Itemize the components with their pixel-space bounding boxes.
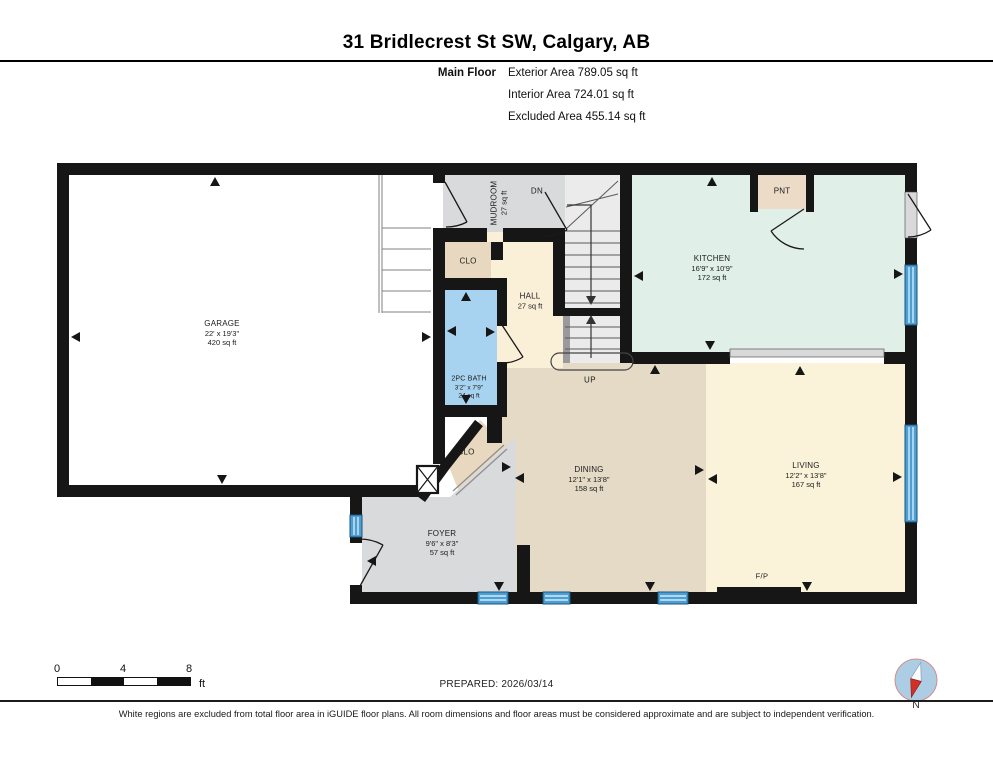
kitchen-half-wall bbox=[730, 349, 884, 357]
room-name: HALL bbox=[518, 292, 543, 302]
room-label-living: LIVING 12'2" x 13'8" 167 sq ft bbox=[785, 461, 826, 490]
scale-tick-0: 0 bbox=[54, 663, 60, 675]
room-dims: 22' x 19'3" bbox=[204, 328, 239, 338]
room-dims: 9'6" x 8'3" bbox=[426, 538, 459, 548]
room-area: 420 sq ft bbox=[204, 338, 239, 348]
room-name: KITCHEN bbox=[691, 254, 732, 264]
stairs-up-label: UP bbox=[584, 376, 596, 385]
dining-window-1 bbox=[543, 592, 570, 604]
room-label-foyer: FOYER 9'6" x 8'3" 57 sq ft bbox=[426, 529, 459, 558]
room-name: MUDROOM bbox=[490, 181, 500, 226]
room-area: 172 sq ft bbox=[691, 273, 732, 283]
room-name: GARAGE bbox=[204, 319, 239, 329]
room-label-dining: DINING 12'1" x 13'8" 158 sq ft bbox=[568, 465, 609, 494]
room-name: PNT bbox=[774, 186, 791, 196]
foyer-bottom-window bbox=[478, 592, 508, 604]
room-area: 57 sq ft bbox=[426, 548, 459, 558]
room-name: FOYER bbox=[426, 529, 459, 539]
footer-divider bbox=[0, 700, 993, 702]
garage-floor bbox=[69, 175, 433, 485]
scale-tick-8: 8 bbox=[186, 663, 192, 675]
kitchen-window bbox=[905, 265, 917, 325]
stairs-upper-floor bbox=[565, 175, 620, 308]
scale-ticks: 0 4 8 bbox=[57, 663, 277, 677]
room-label-kitchen: KITCHEN 16'9" x 10'9" 172 sq ft bbox=[691, 254, 732, 283]
room-name: CLO bbox=[459, 256, 476, 266]
room-dims: 12'1" x 13'8" bbox=[568, 474, 609, 484]
post-symbol bbox=[417, 466, 438, 493]
front-door-opening bbox=[350, 543, 362, 585]
floor-plan-drawing bbox=[0, 0, 993, 768]
room-area: 167 sq ft bbox=[785, 480, 826, 490]
living-window bbox=[905, 425, 917, 522]
prepared-date: PREPARED: 2026/03/14 bbox=[0, 679, 993, 690]
room-area: 158 sq ft bbox=[568, 484, 609, 494]
room-dims: 12'2" x 13'8" bbox=[785, 470, 826, 480]
disclaimer-text: White regions are excluded from total fl… bbox=[0, 709, 993, 719]
room-label-closet-upper: CLO bbox=[459, 256, 476, 266]
compass bbox=[893, 657, 939, 703]
compass-icon bbox=[893, 657, 939, 703]
fireplace-block bbox=[717, 587, 801, 598]
stair-rail bbox=[563, 316, 570, 363]
room-area: 27 sq ft bbox=[518, 301, 543, 311]
room-name: 2PC BATH bbox=[451, 375, 486, 384]
dining-window-2 bbox=[658, 592, 688, 604]
room-label-garage: GARAGE 22' x 19'3" 420 sq ft bbox=[204, 319, 239, 348]
room-label-bath: 2PC BATH 3'2" x 7'9" 24 sq ft bbox=[451, 375, 486, 401]
foyer-side-window bbox=[350, 515, 362, 537]
stairs-down-label: DN bbox=[531, 187, 543, 196]
room-name: LIVING bbox=[785, 461, 826, 471]
room-label-pantry: PNT bbox=[774, 186, 791, 196]
room-name: DINING bbox=[568, 465, 609, 475]
room-area: 24 sq ft bbox=[451, 392, 486, 401]
room-name: CLO bbox=[457, 447, 474, 457]
scale-tick-4: 4 bbox=[120, 663, 126, 675]
room-dims: 3'2" x 7'9" bbox=[451, 384, 486, 393]
room-dims: 16'9" x 10'9" bbox=[691, 263, 732, 273]
room-area: 27 sq ft bbox=[499, 181, 509, 226]
room-label-closet-lower: CLO bbox=[457, 447, 474, 457]
floorplan-page: 31 Bridlecrest St SW, Calgary, AB Main F… bbox=[0, 0, 993, 768]
fireplace-label: F/P bbox=[756, 572, 769, 581]
room-label-mudroom: MUDROOM 27 sq ft bbox=[490, 181, 509, 226]
room-label-hall: HALL 27 sq ft bbox=[518, 292, 543, 311]
